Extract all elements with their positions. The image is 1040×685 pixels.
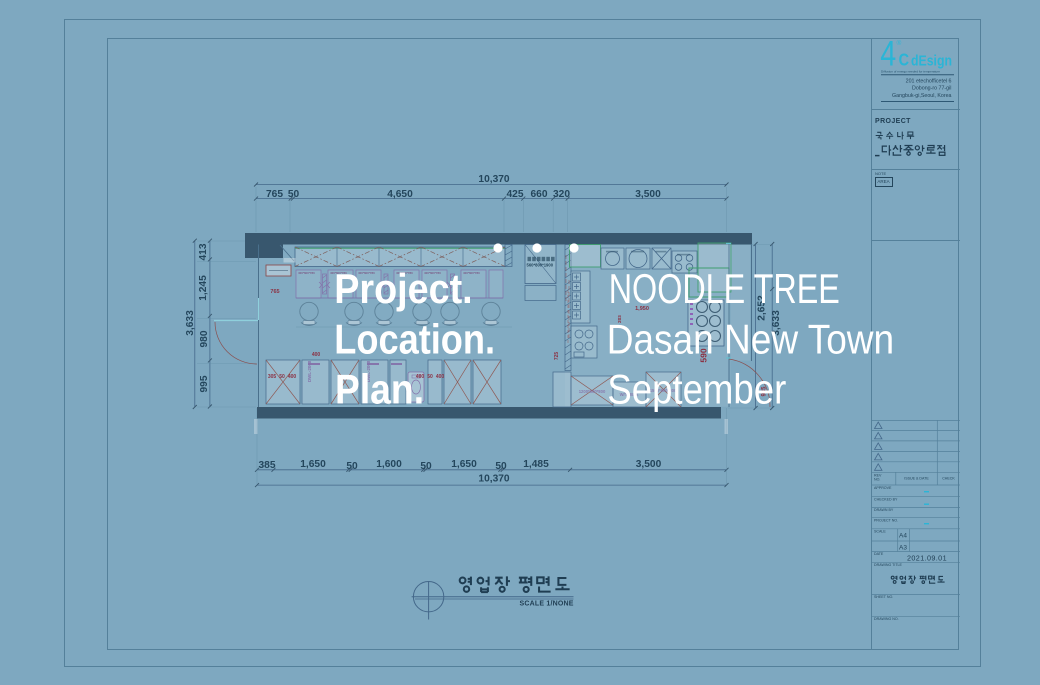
svg-text:SCALE: SCALE bbox=[874, 530, 886, 534]
svg-text:1,245: 1,245 bbox=[198, 275, 209, 301]
svg-text:3,500: 3,500 bbox=[635, 189, 661, 200]
svg-text:4,650: 4,650 bbox=[387, 189, 413, 200]
svg-text:NO.: NO. bbox=[874, 478, 880, 482]
svg-text:dEsign: dEsign bbox=[911, 52, 952, 68]
svg-text:CHECK: CHECK bbox=[942, 477, 955, 481]
svg-text:10,370: 10,370 bbox=[478, 474, 509, 485]
svg-text:4: 4 bbox=[880, 38, 896, 73]
svg-text:320: 320 bbox=[553, 189, 570, 200]
svg-text:DRAWN BY: DRAWN BY bbox=[874, 508, 894, 512]
svg-text:SCALE 1/NONE: SCALE 1/NONE bbox=[520, 601, 574, 608]
svg-text:50: 50 bbox=[420, 461, 432, 472]
svg-text:400: 400 bbox=[312, 352, 321, 358]
svg-text:DWL-2008: DWL-2008 bbox=[307, 360, 312, 382]
svg-text:C: C bbox=[899, 50, 910, 70]
svg-text:765: 765 bbox=[270, 289, 279, 295]
svg-text:Project.: Project. bbox=[334, 266, 472, 312]
svg-text:400*600*780: 400*600*780 bbox=[298, 271, 315, 275]
svg-text:A4: A4 bbox=[899, 533, 907, 540]
svg-text:50: 50 bbox=[279, 374, 285, 380]
svg-text:DATE: DATE bbox=[874, 552, 884, 556]
svg-text:413: 413 bbox=[198, 243, 209, 260]
svg-text:50: 50 bbox=[346, 461, 358, 472]
svg-text:1,485: 1,485 bbox=[523, 459, 549, 470]
svg-text:Gangbuk-gi,Seoul, Korea: Gangbuk-gi,Seoul, Korea bbox=[892, 93, 952, 99]
svg-text:CHECKED BY: CHECKED BY bbox=[874, 498, 898, 502]
svg-text:3,633: 3,633 bbox=[185, 310, 196, 336]
svg-text:2021.09.01: 2021.09.01 bbox=[907, 554, 947, 563]
svg-text:50: 50 bbox=[288, 189, 300, 200]
svg-text:305: 305 bbox=[268, 374, 277, 380]
svg-text:201 etechofficetel 6: 201 etechofficetel 6 bbox=[906, 79, 952, 85]
svg-text:765: 765 bbox=[266, 189, 283, 200]
svg-text:DRAWING TITLE: DRAWING TITLE bbox=[874, 563, 903, 567]
svg-text:425: 425 bbox=[507, 189, 524, 200]
svg-text:1,650: 1,650 bbox=[300, 459, 326, 470]
svg-text:1,650: 1,650 bbox=[451, 459, 477, 470]
svg-text:3,500: 3,500 bbox=[636, 459, 662, 470]
svg-text:®: ® bbox=[897, 39, 902, 47]
svg-text:980: 980 bbox=[199, 330, 210, 347]
svg-text:50: 50 bbox=[495, 461, 507, 472]
svg-text:Location.: Location. bbox=[334, 317, 495, 363]
svg-text:September: September bbox=[607, 366, 786, 413]
svg-text:SHEET NO.: SHEET NO. bbox=[874, 595, 893, 599]
svg-text:Plan.: Plan. bbox=[335, 367, 424, 414]
svg-text:660: 660 bbox=[531, 189, 548, 200]
svg-text:Dobong-ro 77-gil: Dobong-ro 77-gil bbox=[912, 86, 951, 92]
svg-text:PROJECT NO.: PROJECT NO. bbox=[874, 519, 898, 523]
svg-text:10,370: 10,370 bbox=[478, 174, 509, 185]
svg-text:DRAWING NO.: DRAWING NO. bbox=[874, 617, 899, 621]
svg-text:APPROVE: APPROVE bbox=[874, 486, 892, 490]
svg-text:1,600: 1,600 bbox=[376, 459, 402, 470]
svg-text:ISSUE & DATE: ISSUE & DATE bbox=[904, 477, 929, 481]
svg-text:Dasan New Town: Dasan New Town bbox=[607, 316, 894, 363]
svg-text:385: 385 bbox=[259, 460, 276, 471]
svg-text:995: 995 bbox=[199, 375, 210, 392]
svg-text:NOODLE TREE: NOODLE TREE bbox=[609, 265, 840, 312]
svg-text:A3: A3 bbox=[899, 545, 907, 552]
svg-text:400: 400 bbox=[288, 374, 297, 380]
svg-text:Diffusion of energy needed for: Diffusion of energy needed for temperatu… bbox=[881, 70, 940, 74]
